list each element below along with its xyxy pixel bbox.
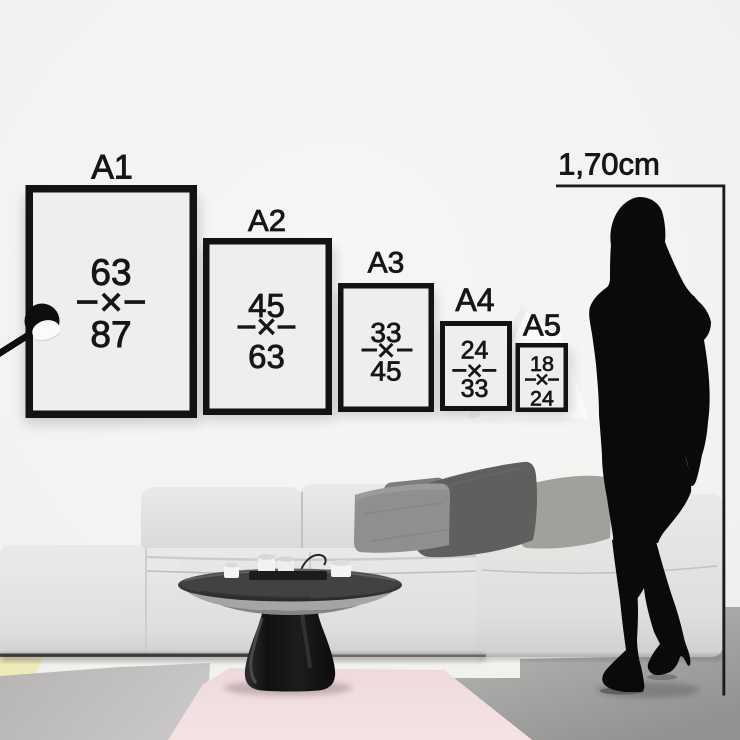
svg-text:A4: A4 xyxy=(455,282,494,318)
svg-text:×: × xyxy=(99,280,122,324)
svg-text:×: × xyxy=(535,367,549,394)
svg-text:×: × xyxy=(466,355,482,386)
svg-text:1,70cm: 1,70cm xyxy=(558,147,660,182)
svg-text:×: × xyxy=(377,332,395,367)
svg-text:A5: A5 xyxy=(523,308,561,343)
svg-text:A1: A1 xyxy=(91,149,133,187)
svg-text:×: × xyxy=(256,308,276,347)
svg-text:A2: A2 xyxy=(248,203,286,238)
svg-text:A3: A3 xyxy=(368,247,405,280)
